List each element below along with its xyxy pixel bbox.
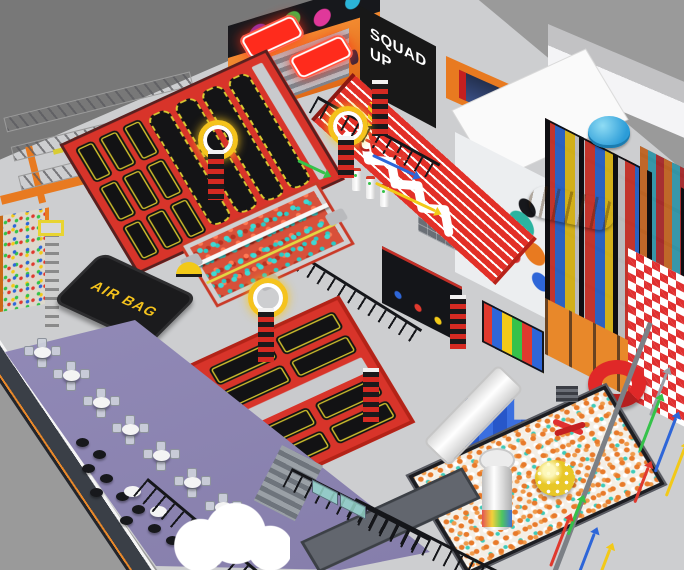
ring-tower [246, 278, 286, 360]
striped-column [372, 80, 388, 136]
ring-tower [326, 106, 366, 176]
striped-column [363, 368, 379, 422]
jump-tower-cap [38, 220, 64, 236]
tower-shaft [208, 150, 224, 200]
pouf [82, 464, 95, 473]
rocket-band [482, 510, 512, 527]
pouf [132, 505, 145, 514]
seesaw-toy [552, 418, 586, 438]
pouf [120, 516, 133, 525]
cloud-decor [166, 502, 290, 570]
play-dome [588, 116, 630, 148]
tower-shaft [338, 136, 354, 178]
pouf [90, 488, 103, 497]
pit-steps [556, 386, 578, 402]
table-set [53, 361, 89, 391]
pouf [76, 438, 89, 447]
polka-ball [535, 460, 575, 496]
turnstile [366, 176, 375, 199]
jump-tower [45, 228, 59, 328]
trampoline-park-render: SQUAD UP ❮❮ [0, 0, 684, 570]
rocket-tower [478, 448, 516, 546]
table-set [83, 388, 119, 418]
pouf [100, 474, 113, 483]
pouf [93, 450, 106, 459]
ring-tower [196, 120, 236, 198]
air-bag-label: AIR BAG [87, 278, 162, 319]
striped-column [450, 295, 466, 349]
table-set [143, 441, 179, 471]
curtain [459, 70, 466, 101]
pouf [148, 524, 161, 533]
tower-shaft [258, 308, 274, 362]
